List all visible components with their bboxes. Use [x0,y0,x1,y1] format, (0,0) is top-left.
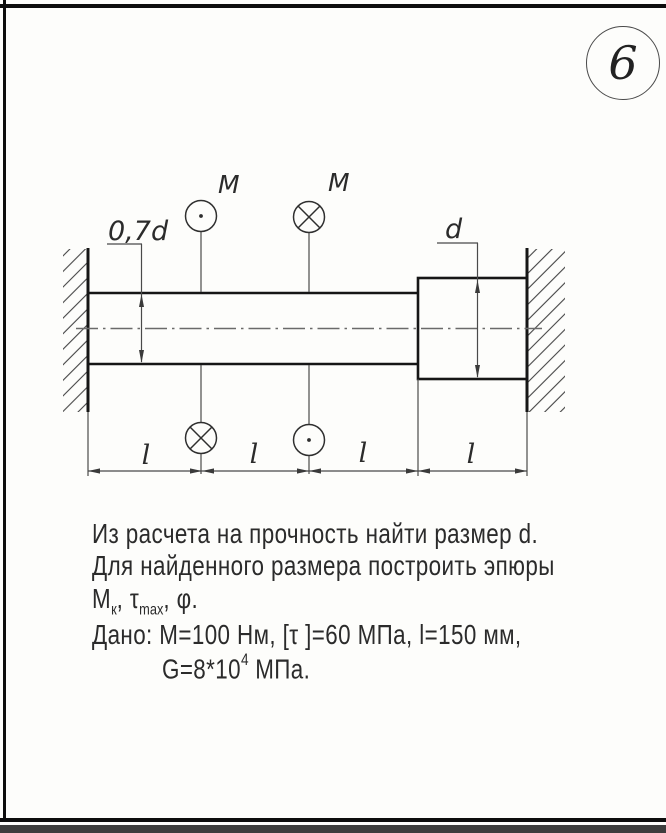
dim-arrow [202,468,214,473]
left-wall-hatch [63,249,88,412]
symbol-phi: φ. [177,583,199,614]
shear-modulus-unit: МПа. [249,653,311,684]
separator: , [117,583,130,614]
shaft-diagram: M M 0,7d d [0,0,666,500]
dim-arrow [418,468,430,473]
moment-label-top-left: M [218,170,240,199]
page-bottom-border [0,818,666,822]
dim-large-diameter-arrow-up [475,280,480,293]
dim-arrow [309,468,321,473]
given-line-1: Дано: M=100 Нм, [τ ]=60 МПа, l=150 мм, [92,619,522,651]
moment-label-top-right: M [328,168,350,197]
right-wall-hatch [527,249,565,412]
dim-small-diameter-label: 0,7d [108,216,169,247]
dim-arrow [406,468,418,473]
moment-bottom-right-dot [307,438,311,442]
length-label-1: l [142,440,151,471]
dim-large-diameter-arrow-down [475,365,480,378]
dim-arrow [88,468,100,473]
symbol-mk: Mк [92,583,117,614]
given-line-2: G=8*104 МПа. [162,653,310,685]
page-footer-band [0,825,666,833]
problem-line-2: Для найденного размера построить эпюры [92,550,555,582]
symbol-tau-max: τmax [130,583,163,614]
dim-arrow [297,468,309,473]
problem-line-1: Из расчета на прочность найти размер d. [92,518,538,550]
length-label-4: l [467,439,476,470]
length-label-2: l [250,439,259,470]
length-label-3: l [359,438,368,469]
separator: , [163,583,176,614]
dim-small-diameter-arrow-up [139,294,144,307]
dim-large-diameter-label: d [445,214,463,245]
shear-modulus-exponent: 4 [241,650,249,669]
shear-modulus-base: G=8*10 [162,653,241,684]
problem-line-3: Mк, τmax, φ. [92,583,198,620]
moment-top-left-dot [199,214,203,218]
scanned-problem-sheet: 6 M M [0,0,666,833]
dim-arrow [515,468,527,473]
dim-arrow [190,468,202,473]
dim-small-diameter-arrow-down [139,350,144,363]
